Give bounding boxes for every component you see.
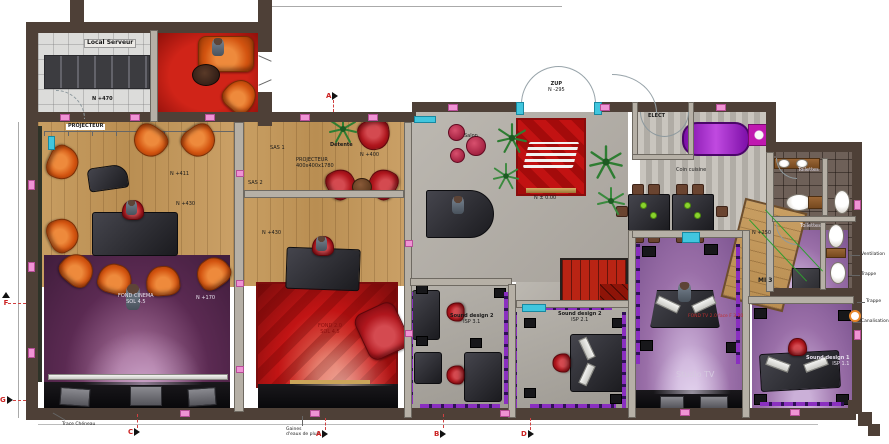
studio2-carpet-note: FOND 2.0SOL 4.5 — [318, 324, 342, 336]
dimension-line-top — [262, 6, 562, 7]
lounge-coffee-table — [192, 64, 220, 86]
trace-annotation: Trace Chéneau — [62, 422, 95, 427]
person-at-studio2-desk — [316, 236, 327, 251]
wall-hall-top-left — [412, 102, 520, 112]
level-label: N +430 — [262, 231, 281, 237]
carpet-gold-trim — [526, 188, 576, 193]
apple-decor — [684, 202, 691, 209]
wall-marker — [236, 280, 244, 287]
wall-annex-top — [26, 22, 272, 33]
toilet-icon — [830, 262, 846, 284]
plant-icon — [596, 186, 626, 216]
person-at-studio-tv — [678, 282, 691, 302]
room-label-sas2: SAS 2 — [248, 181, 263, 187]
studio-tv-ac-unit — [682, 232, 700, 243]
wall-marker — [236, 366, 244, 373]
ac-unit-marker — [48, 136, 55, 150]
room-label-toilettes-1: Toilettes — [798, 168, 819, 174]
wall-marker — [405, 330, 413, 337]
server-racks — [44, 55, 150, 89]
person-at-cinema-desk — [126, 200, 137, 215]
cinema-stage-note: FOND CINEMASOL 4.5 — [118, 294, 154, 306]
toilet-shelf — [826, 248, 846, 258]
section-marker-a-top: A — [326, 92, 338, 100]
wall-marker — [300, 114, 310, 121]
trappe-ring-icon — [849, 310, 861, 322]
apple-decor — [640, 202, 647, 209]
corridor-door-arc — [612, 74, 657, 113]
section-line-b — [443, 414, 444, 428]
sound2b-chair — [553, 354, 571, 373]
partition-hall-sound2a — [410, 278, 512, 286]
sound1-chair — [788, 338, 807, 356]
detente-projecteur-note: PROJECTEUR400x400x1780 — [296, 158, 334, 170]
sound2a-desk-1 — [412, 290, 440, 340]
partition-hall-studio-tv — [628, 230, 636, 418]
room-label-local-serveur: Local Serveur — [84, 39, 136, 48]
wall-marker — [500, 410, 510, 417]
wall-marker — [405, 240, 413, 247]
sound2b-acoustic-right — [622, 312, 626, 408]
trappe-leader-b — [857, 302, 865, 303]
level-label: N +470 — [92, 97, 113, 103]
ramp-mi3-label: MI 3 — [758, 278, 772, 285]
section-marker-c: C — [128, 428, 140, 436]
wall-marker — [28, 180, 35, 190]
canalisation-leader — [853, 322, 861, 323]
partition-bath-horizontal — [772, 216, 856, 222]
sound2b-speaker-1 — [524, 318, 536, 328]
wall-right-connector — [766, 102, 776, 156]
wall-annex-left — [26, 22, 38, 126]
room-label-sound2b: Sound design 2ISP 2.1 — [558, 312, 602, 324]
dining-table-2 — [672, 194, 714, 232]
cinema-projecteur-label: PROJECTEUR — [66, 124, 105, 130]
room-label-sound2a: Sound design 2ISP 3.1 — [450, 314, 494, 326]
sound2a-speaker-4 — [470, 338, 482, 348]
wall-corner-step-3 — [868, 424, 880, 436]
plant-icon — [492, 162, 520, 190]
hall-salon-label: Salon — [464, 134, 478, 140]
section-line-a-top — [333, 100, 334, 112]
section-marker-d: D — [521, 430, 534, 438]
wall-marker — [790, 409, 800, 416]
partition-detente-studio2 — [244, 190, 404, 198]
section-marker-a-bottom: A — [316, 430, 328, 438]
ventilation-annotation: Ventilation — [861, 252, 885, 257]
ventilation-leader — [850, 255, 860, 256]
room-label-elect: ELECT — [648, 114, 665, 120]
ac-unit-marker — [414, 116, 436, 123]
dining-chair — [676, 184, 688, 195]
wall-marker — [28, 348, 35, 358]
room-label-studio-tv: Studio TV — [676, 370, 714, 379]
stage-case-3 — [187, 387, 216, 407]
level-label: N +400 — [360, 153, 379, 159]
level-label: N ± 0.00 — [534, 196, 556, 202]
wall-bath-top — [776, 142, 862, 152]
trappe-annotation-a: Trappe — [861, 272, 876, 277]
partition-bath-vertical — [822, 158, 828, 216]
sound1-acoustic-bottom — [760, 402, 844, 406]
studio-tv-note: FOND TV 2.0 face F 3.20 — [688, 314, 743, 319]
apple-decor — [694, 212, 701, 219]
level-label: N +430 — [176, 202, 195, 208]
brand-logo-carpet — [523, 142, 579, 168]
wall-marker — [600, 104, 610, 111]
section-marker-b: B — [434, 430, 446, 438]
section-line-d — [530, 418, 531, 430]
person-on-sofa — [212, 38, 224, 56]
section-marker-f: F — [2, 292, 10, 307]
level-label: N +250 — [752, 231, 771, 237]
level-label: N +411 — [170, 172, 189, 178]
cinema-wall-acoustic-strip — [38, 126, 42, 382]
stage-case-1 — [59, 387, 90, 407]
person-at-reception — [452, 196, 464, 214]
canalisation-annotation: Canalisation — [861, 319, 889, 324]
stage-case-2 — [130, 386, 162, 406]
section-line-f — [8, 303, 26, 304]
studio2-carpet-trim — [290, 380, 370, 384]
wall-marker — [854, 200, 861, 210]
dining-chair — [692, 184, 704, 195]
sound2a-desk-3 — [414, 352, 442, 384]
partition-elect-right — [688, 102, 694, 160]
dimension-line-bottom — [38, 424, 818, 425]
hall-pouf-3 — [450, 148, 465, 163]
wall-marker — [205, 114, 215, 121]
entrance-zup-label: ZUPN -295 — [548, 82, 565, 94]
room-label-sas1: SAS 1 — [270, 146, 285, 152]
level-label: N +170 — [196, 296, 215, 302]
wall-marker — [28, 262, 35, 272]
partition-serveur-lounge — [150, 30, 158, 122]
dining-chair — [648, 184, 660, 195]
dining-table-1 — [628, 194, 670, 232]
sound2b-ac-unit — [522, 304, 546, 312]
wall-corridor-top — [640, 102, 776, 112]
sound1-speaker-1 — [754, 308, 767, 319]
section-line-c — [137, 414, 138, 428]
trappe-leader-a — [850, 275, 860, 276]
plant-icon — [588, 144, 624, 180]
wall-marker — [236, 170, 244, 177]
gaines-leader — [302, 416, 303, 426]
partition-bath-left — [766, 152, 774, 292]
wall-bath-bottom — [770, 288, 862, 296]
partition-sound1-top — [748, 296, 854, 304]
sound2a-speaker-2 — [416, 336, 428, 346]
partition-sound2a-sound2b — [508, 284, 516, 418]
sound2b-speaker-2 — [524, 388, 536, 398]
wall-marker — [448, 104, 458, 111]
coin-cuisine-label: Coin cuisine — [676, 168, 706, 174]
wall-annex-stub — [70, 0, 84, 28]
dimension-line-left — [18, 122, 19, 418]
trappe-annotation-b: Trappe — [866, 299, 881, 304]
sound2a-chair-2 — [447, 366, 465, 385]
room-label-detente: Détente — [330, 143, 353, 149]
apple-decor — [650, 212, 657, 219]
sound2b-speaker-4 — [610, 394, 622, 404]
studio-tv-acoustic-right — [736, 244, 740, 364]
studio-tv-speaker-3 — [640, 340, 653, 351]
toilet-icon — [828, 224, 844, 248]
sound2a-desk-2 — [464, 352, 502, 402]
dining-chair — [632, 184, 644, 195]
wall-marker — [680, 409, 690, 416]
studio2-stage — [258, 384, 398, 410]
wall-marker — [854, 330, 861, 340]
plant-icon — [496, 122, 528, 154]
wall-marker — [130, 114, 140, 121]
wall-marker — [60, 114, 70, 121]
cinema-screen — [48, 374, 228, 380]
room-label-toilettes-2: Toilettes — [800, 224, 821, 230]
room-label-sound1: Sound design 1ISP 1.1 — [806, 356, 850, 368]
wall-main-bottom — [26, 408, 856, 420]
entrance-door-frame-left — [516, 102, 524, 115]
wall-marker — [368, 114, 378, 121]
wall-marker — [716, 104, 726, 111]
studio-tv-speaker-2 — [704, 244, 718, 255]
section-line-a-bottom — [325, 418, 326, 430]
partition-bath-vertical-2 — [820, 222, 826, 290]
toilet-icon — [834, 190, 850, 214]
hall-pouf-1 — [448, 124, 465, 141]
wall-marker — [180, 410, 190, 417]
section-marker-g: G — [0, 396, 13, 404]
floor-plan: Local Serveur N +470 PROJECTEUR N +411 N… — [0, 0, 889, 444]
partition-studio2-hall — [404, 122, 412, 418]
studio-tv-speaker-1 — [642, 246, 656, 257]
wall-marker — [310, 410, 320, 417]
dining-chair — [716, 206, 728, 217]
studio-tv-acoustic-left — [636, 244, 640, 364]
partition-elect-bottom — [632, 154, 694, 160]
partition-studio-tv-right — [742, 230, 750, 418]
